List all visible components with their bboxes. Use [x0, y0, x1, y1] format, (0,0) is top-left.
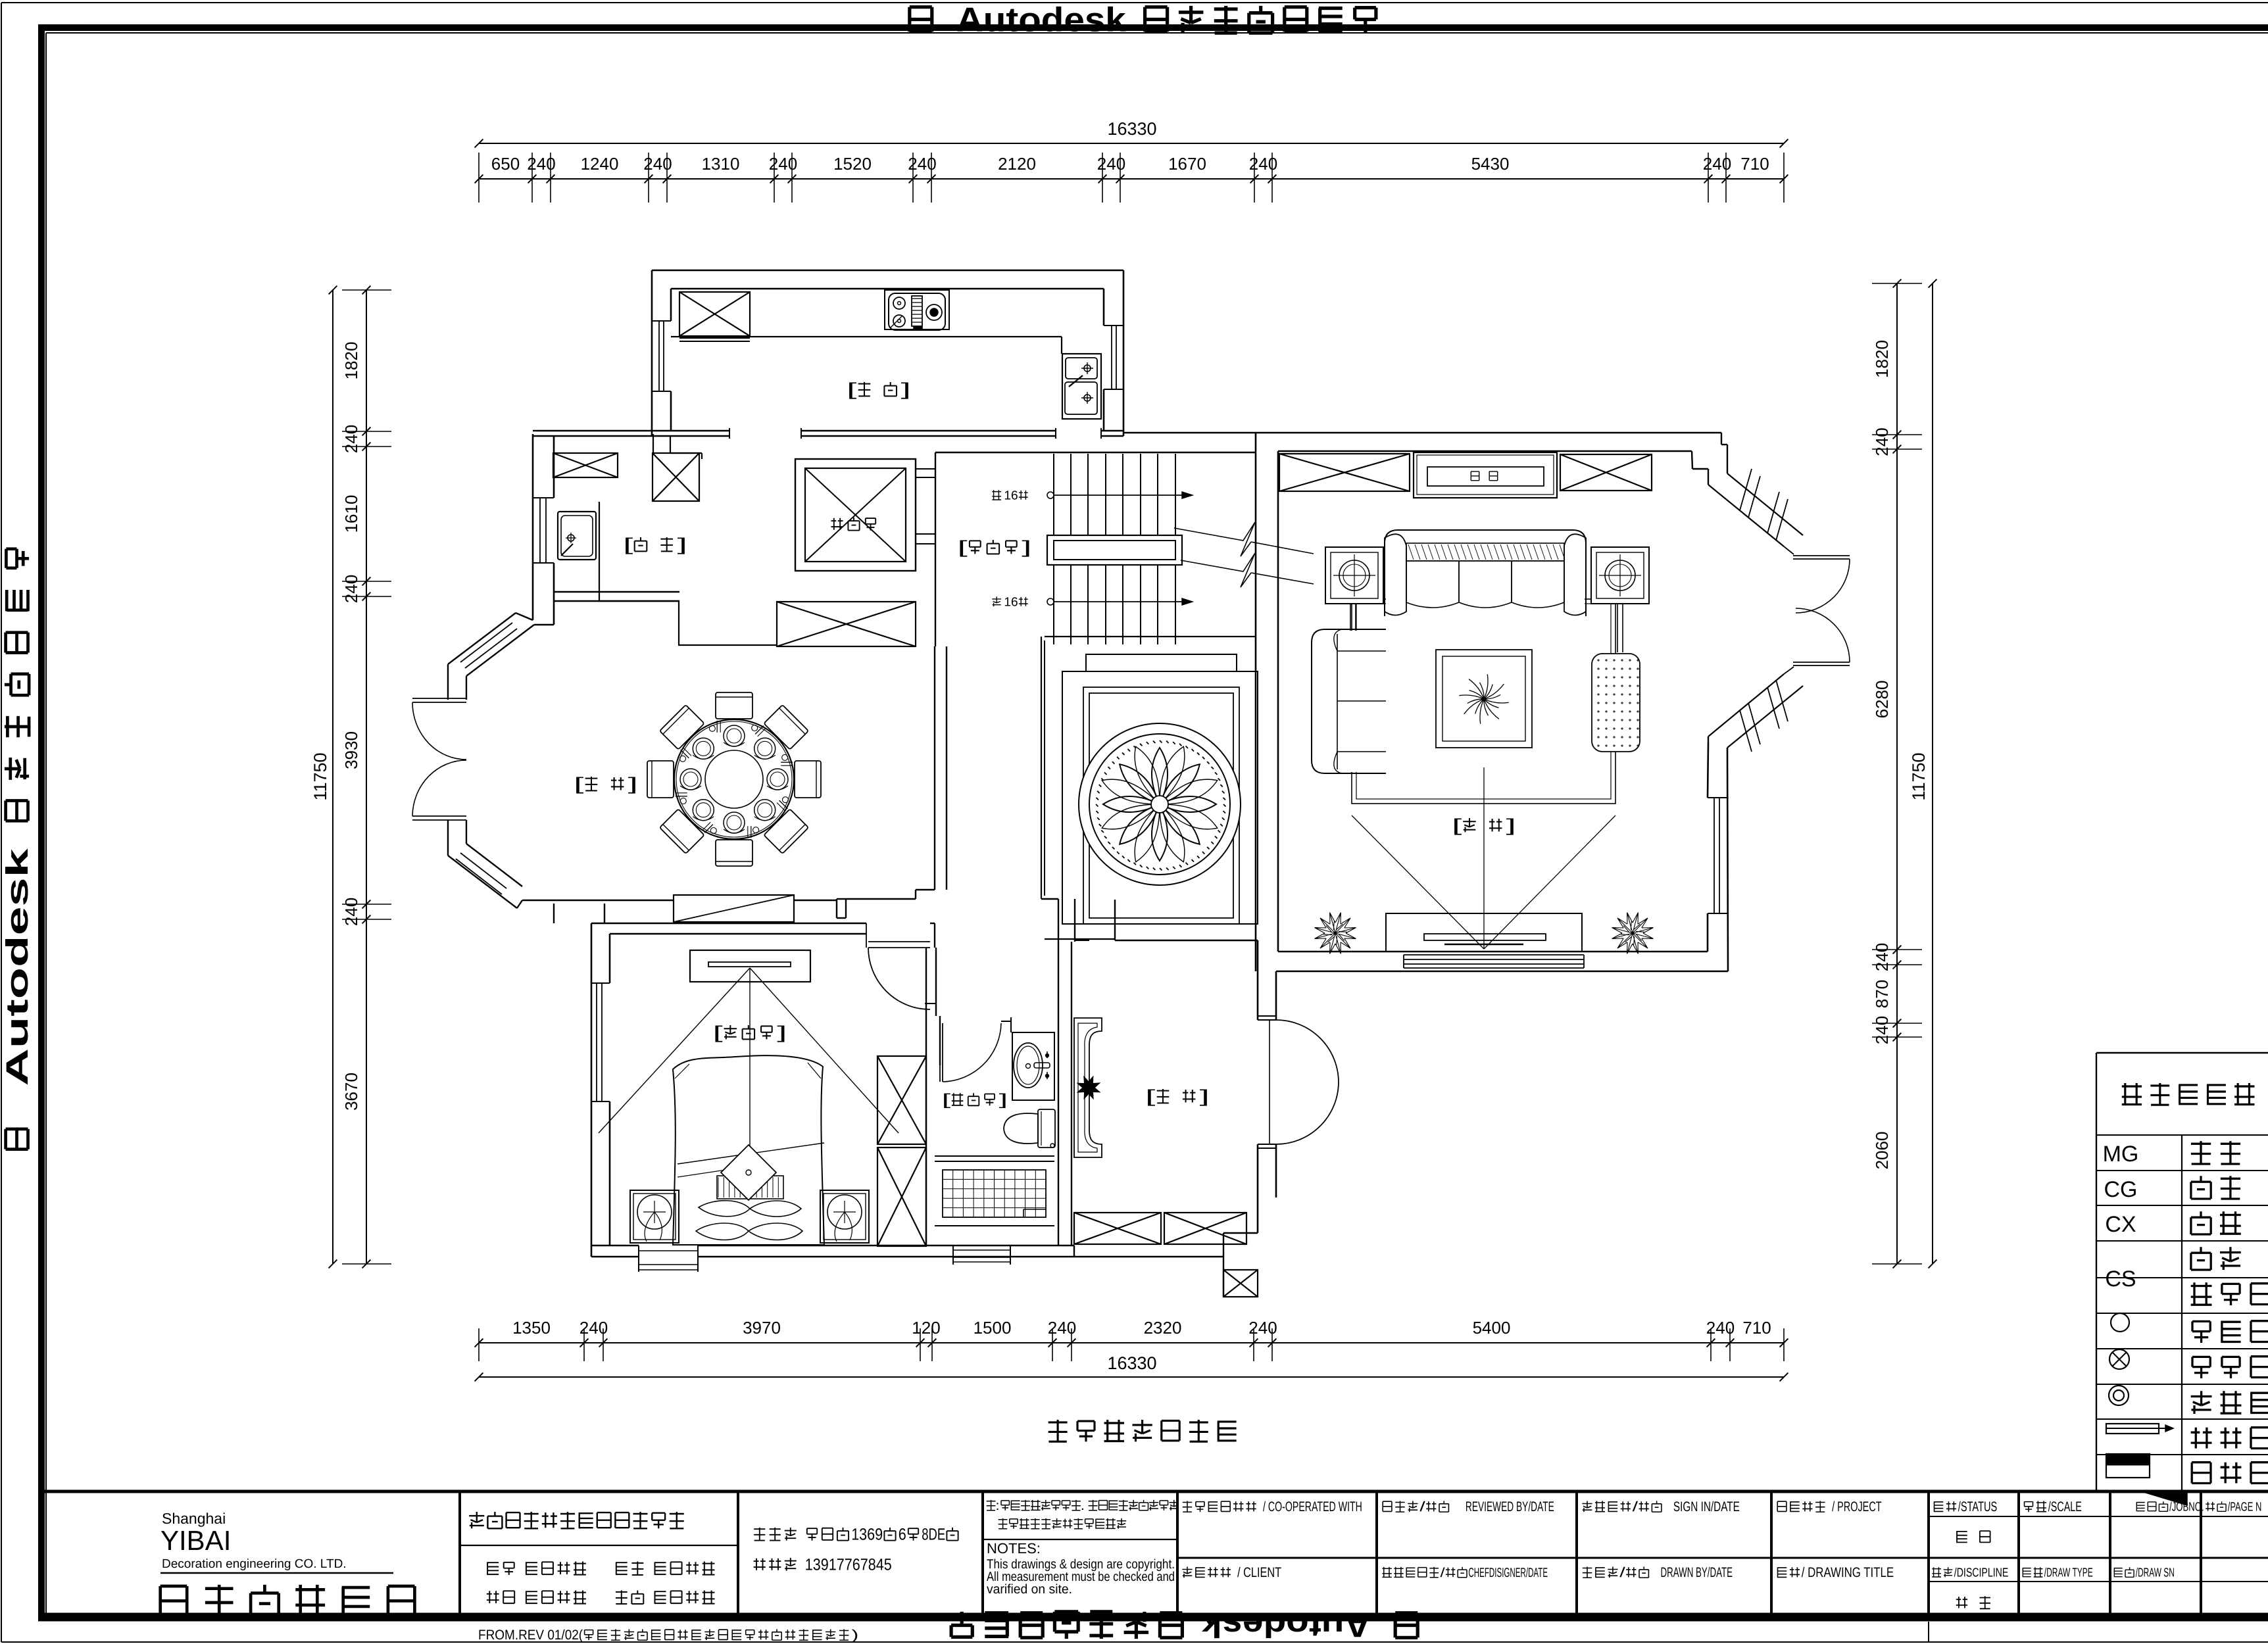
- svg-text:/ DRAWING TITLE: / DRAWING TITLE: [1802, 1565, 1894, 1580]
- svg-text:240: 240: [1872, 427, 1892, 456]
- svg-text:240: 240: [1706, 1318, 1735, 1338]
- svg-text:16: 16: [1004, 489, 1018, 503]
- svg-text:710: 710: [1742, 1318, 1771, 1338]
- svg-text:11750: 11750: [1909, 752, 1929, 800]
- svg-text:/: /: [1441, 1566, 1446, 1580]
- svg-text:1369: 1369: [851, 1526, 883, 1544]
- svg-text:240: 240: [527, 154, 555, 174]
- svg-text:1350: 1350: [512, 1318, 551, 1338]
- svg-text:16: 16: [1004, 596, 1018, 610]
- svg-text:/: /: [1619, 1565, 1625, 1580]
- svg-text:240: 240: [1249, 154, 1277, 174]
- svg-text:120: 120: [912, 1318, 940, 1338]
- svg-text:/DRAW SN: /DRAW SN: [2136, 1566, 2175, 1580]
- svg-text:6280: 6280: [1872, 681, 1892, 719]
- svg-text:[: [: [847, 379, 857, 399]
- svg-text:240: 240: [1097, 154, 1125, 174]
- svg-text:/DISCIPLINE: /DISCIPLINE: [1954, 1566, 2009, 1580]
- svg-text:240: 240: [579, 1318, 608, 1338]
- svg-text:240: 240: [341, 898, 361, 926]
- svg-text:REVIEWED BY/DATE: REVIEWED BY/DATE: [1466, 1499, 1554, 1514]
- svg-text:6: 6: [899, 1526, 906, 1544]
- svg-text:3970: 3970: [743, 1318, 781, 1338]
- svg-text:[: [: [942, 1091, 951, 1109]
- svg-text:240: 240: [643, 154, 672, 174]
- svg-text:]: ]: [1022, 537, 1031, 557]
- svg-text:YIBAI: YIBAI: [160, 1525, 231, 1556]
- svg-text:1520: 1520: [833, 154, 872, 174]
- svg-text:240: 240: [1248, 1318, 1277, 1338]
- svg-text:240: 240: [1872, 943, 1892, 971]
- svg-text:650: 650: [491, 154, 520, 174]
- svg-text:13917767845: 13917767845: [805, 1556, 892, 1574]
- svg-text:710: 710: [1740, 154, 1769, 174]
- svg-text:16330: 16330: [1107, 1353, 1156, 1373]
- svg-text:1240: 1240: [581, 154, 619, 174]
- svg-text:/SCALE: /SCALE: [2048, 1499, 2082, 1514]
- svg-text:]: ]: [628, 774, 638, 794]
- svg-text:[: [: [1145, 1086, 1156, 1106]
- svg-text:/ CLIENT: / CLIENT: [1237, 1565, 1281, 1580]
- svg-text:240: 240: [1872, 1016, 1892, 1044]
- svg-text:240: 240: [341, 575, 361, 603]
- svg-text:]: ]: [1200, 1086, 1210, 1106]
- svg-text:240: 240: [1703, 154, 1731, 174]
- svg-text:5400: 5400: [1473, 1318, 1511, 1338]
- svg-text:1610: 1610: [341, 495, 361, 533]
- svg-text:240: 240: [1048, 1318, 1076, 1338]
- svg-text:240: 240: [341, 425, 361, 453]
- svg-text::: :: [995, 1499, 999, 1513]
- svg-text:]: ]: [901, 379, 911, 399]
- svg-text:/ PROJECT: / PROJECT: [1832, 1499, 1882, 1514]
- svg-text:8DE: 8DE: [922, 1526, 945, 1544]
- svg-text:870: 870: [1872, 980, 1892, 1008]
- svg-text:/PAGE N: /PAGE N: [2228, 1501, 2262, 1514]
- svg-text:MG: MG: [2103, 1142, 2139, 1167]
- svg-text:2060: 2060: [1872, 1132, 1892, 1170]
- svg-text:CS: CS: [2105, 1267, 2136, 1292]
- svg-text:3670: 3670: [341, 1073, 361, 1111]
- svg-text:FROM.REV 01/02(: FROM.REV 01/02(: [478, 1628, 583, 1643]
- svg-text:[: [: [713, 1023, 724, 1042]
- svg-text:1820: 1820: [341, 342, 361, 380]
- svg-text:16330: 16330: [1107, 119, 1156, 139]
- svg-text:240: 240: [908, 154, 936, 174]
- svg-text:): ): [852, 1628, 859, 1643]
- svg-text:DRAWN BY/DATE: DRAWN BY/DATE: [1661, 1565, 1733, 1580]
- svg-text:Autodesk: Autodesk: [956, 1, 1126, 39]
- svg-text:2320: 2320: [1144, 1318, 1182, 1338]
- svg-text:2120: 2120: [998, 154, 1036, 174]
- svg-text:1820: 1820: [1872, 340, 1892, 378]
- svg-text:1670: 1670: [1168, 154, 1206, 174]
- svg-text:varified on site.: varified on site.: [987, 1582, 1072, 1597]
- svg-text:]: ]: [1506, 815, 1516, 835]
- svg-text:11750: 11750: [310, 752, 330, 800]
- svg-text:5430: 5430: [1471, 154, 1510, 174]
- svg-text:CHEFDISIGNER/DATE: CHEFDISIGNER/DATE: [1468, 1566, 1548, 1580]
- svg-text:[: [: [958, 537, 968, 557]
- svg-text:[: [: [1452, 815, 1462, 835]
- svg-text:3930: 3930: [341, 731, 361, 769]
- svg-text:CG: CG: [2104, 1177, 2138, 1202]
- svg-text:]: ]: [777, 1023, 787, 1042]
- svg-text:]: ]: [999, 1091, 1008, 1109]
- svg-text:Decoration engineering CO. LTD: Decoration engineering CO. LTD.: [162, 1557, 347, 1571]
- svg-text:NOTES:: NOTES:: [987, 1540, 1041, 1557]
- svg-text:/: /: [1419, 1499, 1425, 1514]
- svg-text:.: .: [1081, 1499, 1085, 1513]
- svg-text:CX: CX: [2105, 1212, 2136, 1237]
- svg-text:1500: 1500: [974, 1318, 1012, 1338]
- svg-text:]: ]: [678, 535, 687, 554]
- svg-text:Autodesk: Autodesk: [1201, 1605, 1371, 1643]
- svg-text:/ CO-OPERATED WITH: / CO-OPERATED WITH: [1263, 1499, 1362, 1514]
- svg-text:240: 240: [769, 154, 797, 174]
- svg-text:/: /: [1633, 1499, 1639, 1514]
- svg-text:[: [: [574, 774, 584, 794]
- svg-text:Autodesk: Autodesk: [0, 848, 34, 1086]
- svg-text:/STATUS: /STATUS: [1958, 1499, 1998, 1514]
- svg-text:/DRAW TYPE: /DRAW TYPE: [2044, 1566, 2093, 1580]
- svg-text:[: [: [623, 535, 633, 554]
- svg-text:1310: 1310: [702, 154, 740, 174]
- svg-text:SIGN IN/DATE: SIGN IN/DATE: [1673, 1499, 1740, 1514]
